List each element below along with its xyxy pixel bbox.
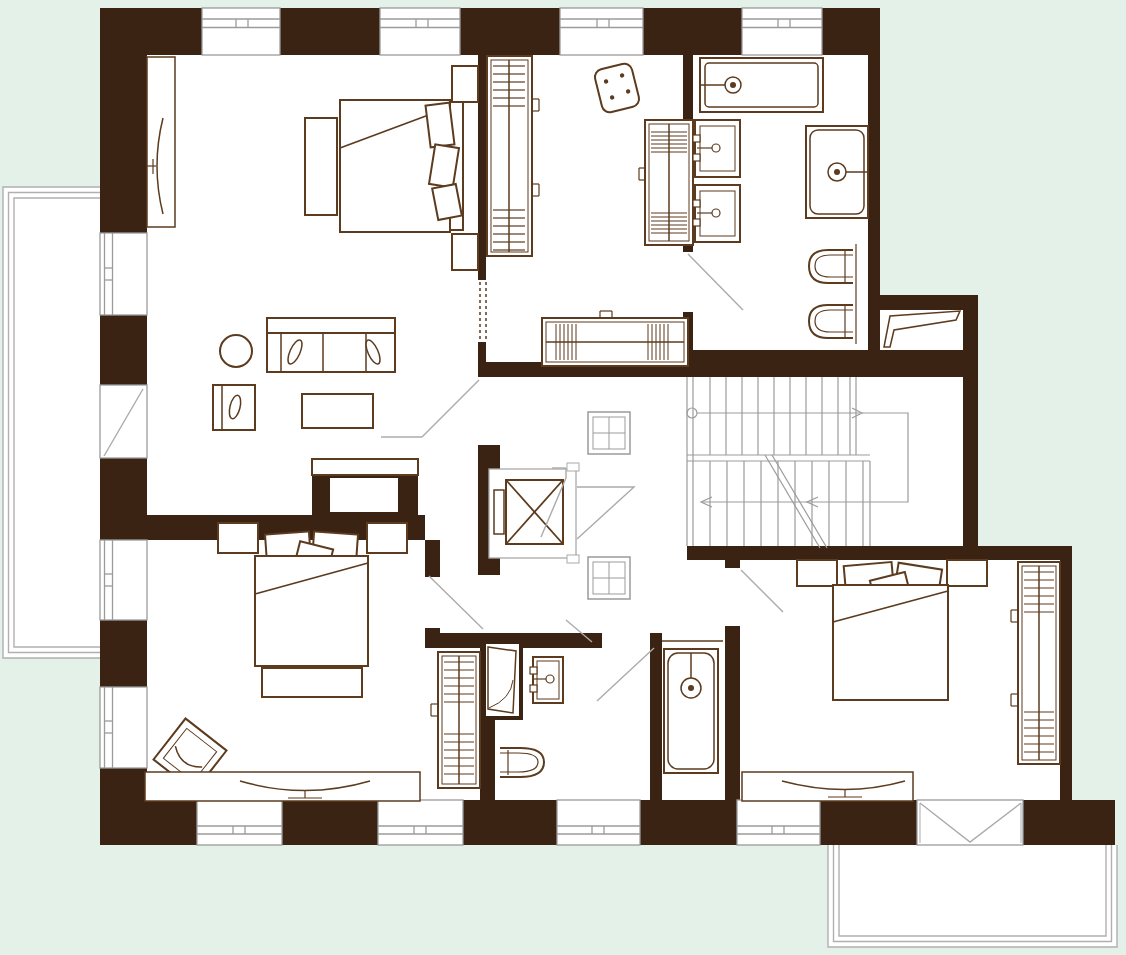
- bath1-sink-2-handle-a: [693, 200, 700, 207]
- bathtub-faucet-dot: [730, 82, 736, 88]
- bedroom2-nightstand-2: [367, 523, 407, 553]
- bedroom3-nightstand-1: [797, 560, 837, 586]
- left-window-1: [100, 233, 147, 315]
- balcony-left-outer: [3, 187, 100, 658]
- bath2-shower-panel: [488, 647, 516, 713]
- balcony-left: [3, 187, 100, 658]
- bottom-window-4: [737, 800, 820, 845]
- bath2-sink-handle-a: [530, 667, 537, 674]
- left-wall-c: [100, 458, 147, 540]
- bath1-sink-1-tap: [712, 144, 720, 152]
- bedroom3-nightstand-2: [947, 560, 987, 586]
- bottom-wall-a: [100, 800, 197, 845]
- bedroom3-sill-console: [742, 772, 913, 801]
- bedroom1-pillow-3: [432, 184, 462, 220]
- left-window-3: [100, 687, 147, 768]
- balcony-br-outer: [828, 845, 1117, 947]
- bath2-sink-tap: [546, 675, 554, 683]
- bottom-window-2: [378, 800, 463, 845]
- bedroom1-pillow-1: [426, 103, 455, 148]
- bedroom2-door-jamb-b: [425, 628, 440, 648]
- bedroom2-bench: [262, 668, 362, 697]
- stair-east-wall: [963, 295, 978, 557]
- top-window-3: [560, 8, 643, 55]
- bottom-window-1: [197, 800, 282, 845]
- coffee-table: [302, 394, 373, 428]
- fireplace-mantel: [312, 459, 418, 475]
- bath1-sink-1-handle-a: [693, 135, 700, 142]
- sofa-back: [267, 318, 395, 333]
- bath2-toilet-inner: [500, 753, 538, 772]
- fireplace-opening: [330, 478, 398, 512]
- bottom-window-3: [557, 800, 640, 845]
- bath1-sink-2-tap: [712, 209, 720, 217]
- left-wall-b: [100, 315, 147, 385]
- entry-room-top-wall: [868, 295, 978, 310]
- bottom-wall-d: [640, 800, 737, 845]
- bedroom2-nightstand-1: [218, 523, 258, 553]
- showerroom-head-dot: [688, 685, 694, 691]
- balcony-bottom-right: [828, 845, 1117, 947]
- bedroom1-nightstand-1: [452, 66, 478, 102]
- bottom-wall-e: [820, 800, 917, 845]
- entry-room-west-wall: [868, 310, 880, 350]
- bedroom2-bed: [255, 556, 368, 666]
- showerroom-west-wall: [650, 633, 662, 800]
- bedroom1-east-wall-b: [478, 342, 486, 362]
- shower-drain-dot: [834, 169, 840, 175]
- bedroom2-door-jamb-a: [425, 540, 440, 577]
- bath1-south-wall: [683, 350, 880, 377]
- elevator-jamb-bottom: [567, 555, 579, 563]
- left-wall-a: [100, 8, 147, 233]
- floor-plan-svg: [0, 0, 1126, 955]
- top-wall-d: [643, 8, 742, 55]
- bedroom3-west-wall-b: [725, 626, 740, 800]
- bottom-wall-b: [282, 800, 378, 845]
- top-window-2: [380, 8, 460, 55]
- bedroom1-bench: [305, 118, 337, 215]
- bedroom1-east-wall-a: [478, 55, 486, 280]
- top-wall-c: [460, 8, 560, 55]
- bedroom2-sill-console: [145, 772, 420, 801]
- bottom-wall-c: [463, 800, 557, 845]
- bedroom1-nightstand-2: [452, 234, 478, 270]
- stair-south-wall: [687, 546, 1072, 560]
- living-side-table: [220, 335, 252, 367]
- elevator-jamb-top: [567, 463, 579, 471]
- top-window-4: [742, 8, 822, 55]
- bath1-sink-1-handle-b: [693, 154, 700, 161]
- bedroom1-pillow-2: [429, 144, 459, 187]
- bedroom3-east-wall: [1060, 560, 1072, 800]
- toilet-1-inner: [815, 255, 853, 277]
- bottom-wall-f: [1023, 800, 1115, 845]
- bedroom3-west-wall-a: [725, 560, 740, 568]
- bath2-sink-handle-b: [530, 685, 537, 692]
- bedroom3-bed: [833, 585, 948, 700]
- bath1-sink-2-handle-b: [693, 219, 700, 226]
- toilet-2-inner: [815, 310, 853, 332]
- top-wall-e: [822, 8, 880, 55]
- french-door-opening: [917, 800, 1023, 845]
- elevator-door-panel: [494, 490, 504, 534]
- top-wall-b: [280, 8, 380, 55]
- left-window-2: [100, 540, 147, 620]
- bath1-east-wall: [868, 55, 880, 310]
- floor-plan-canvas: [0, 0, 1126, 955]
- left-wall-d: [100, 620, 147, 687]
- top-window-1: [202, 8, 280, 55]
